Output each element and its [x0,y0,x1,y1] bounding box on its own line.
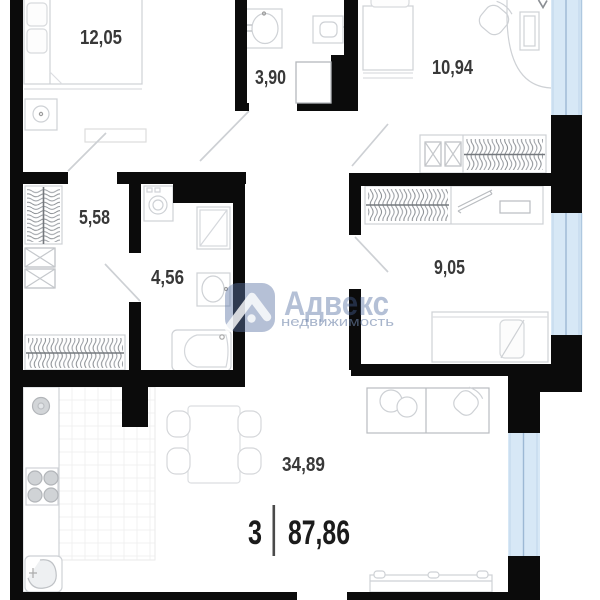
svg-text:5,58: 5,58 [79,207,110,229]
svg-text:4,56: 4,56 [151,267,184,289]
svg-text:87,86: 87,86 [288,514,350,552]
svg-text:10,94: 10,94 [432,57,474,79]
svg-text:3: 3 [248,514,262,552]
svg-text:3,90: 3,90 [255,67,286,89]
svg-text:недвижимость: недвижимость [281,314,394,329]
svg-text:34,89: 34,89 [282,454,325,476]
svg-text:9,05: 9,05 [434,257,465,279]
svg-text:12,05: 12,05 [80,27,122,49]
